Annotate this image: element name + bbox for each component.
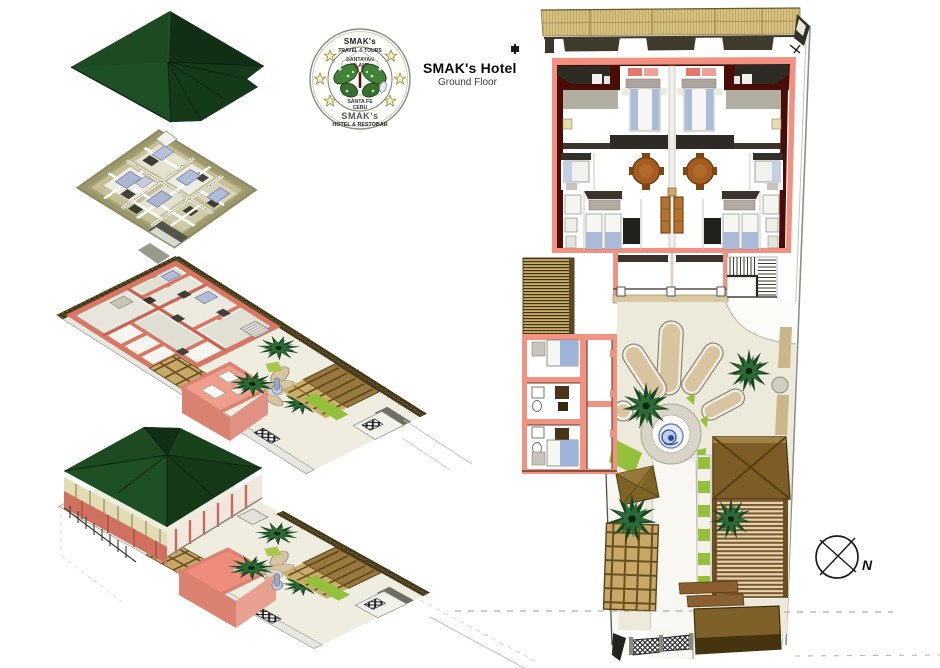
svg-text:HOTEL & RESTOBAR: HOTEL & RESTOBAR [332, 122, 387, 128]
svg-text:SMAK's Hotel: SMAK's Hotel [423, 60, 517, 76]
svg-text:N: N [862, 557, 873, 573]
svg-text:TRAVEL & TOURS: TRAVEL & TOURS [338, 48, 382, 54]
svg-text:SMAK's: SMAK's [344, 37, 376, 46]
svg-text:Ground Floor: Ground Floor [438, 77, 498, 88]
svg-text:SMAK's: SMAK's [341, 111, 378, 121]
